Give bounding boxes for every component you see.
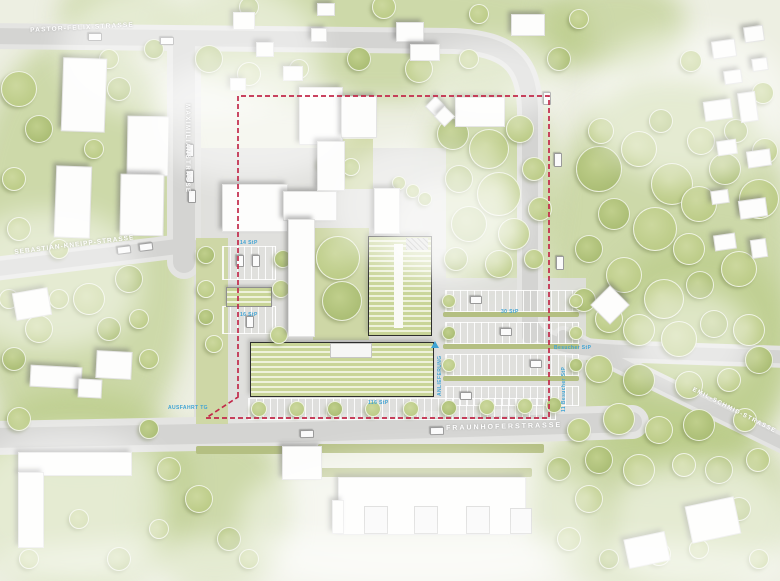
parking-info-label: 14 StP [240, 240, 258, 246]
parking-info-label: 116 StP [368, 400, 389, 406]
parking-info-label: ANLIEFERUNG [437, 355, 443, 396]
parking-info-label: 11 Besucher StP [561, 367, 567, 412]
parking-info-label: Besucher StP [554, 345, 591, 351]
street-name-label: PASTOR-FELIX-STRASSE [30, 22, 134, 34]
site-plan: PASTOR-FELIX-STRASSEMAXIMILIANSTRASSESEB… [0, 0, 780, 581]
label-layer: PASTOR-FELIX-STRASSEMAXIMILIANSTRASSESEB… [0, 0, 780, 581]
arrow-up-icon [431, 341, 439, 348]
street-name-label: SEBASTIAN-KNEIPP-STRASSE [14, 234, 135, 256]
parking-info-label: AUSFAHRT TG [168, 405, 208, 411]
parking-info-label: 30 StP [501, 309, 519, 315]
street-name-label: MAXIMILIANSTRASSE [184, 104, 190, 194]
street-name-label: EMIL-SCHMID-STRASSE [691, 387, 777, 435]
parking-info-label: 16 StP [240, 312, 258, 318]
street-name-label: FRAUNHOFERSTRASSE [446, 422, 562, 432]
